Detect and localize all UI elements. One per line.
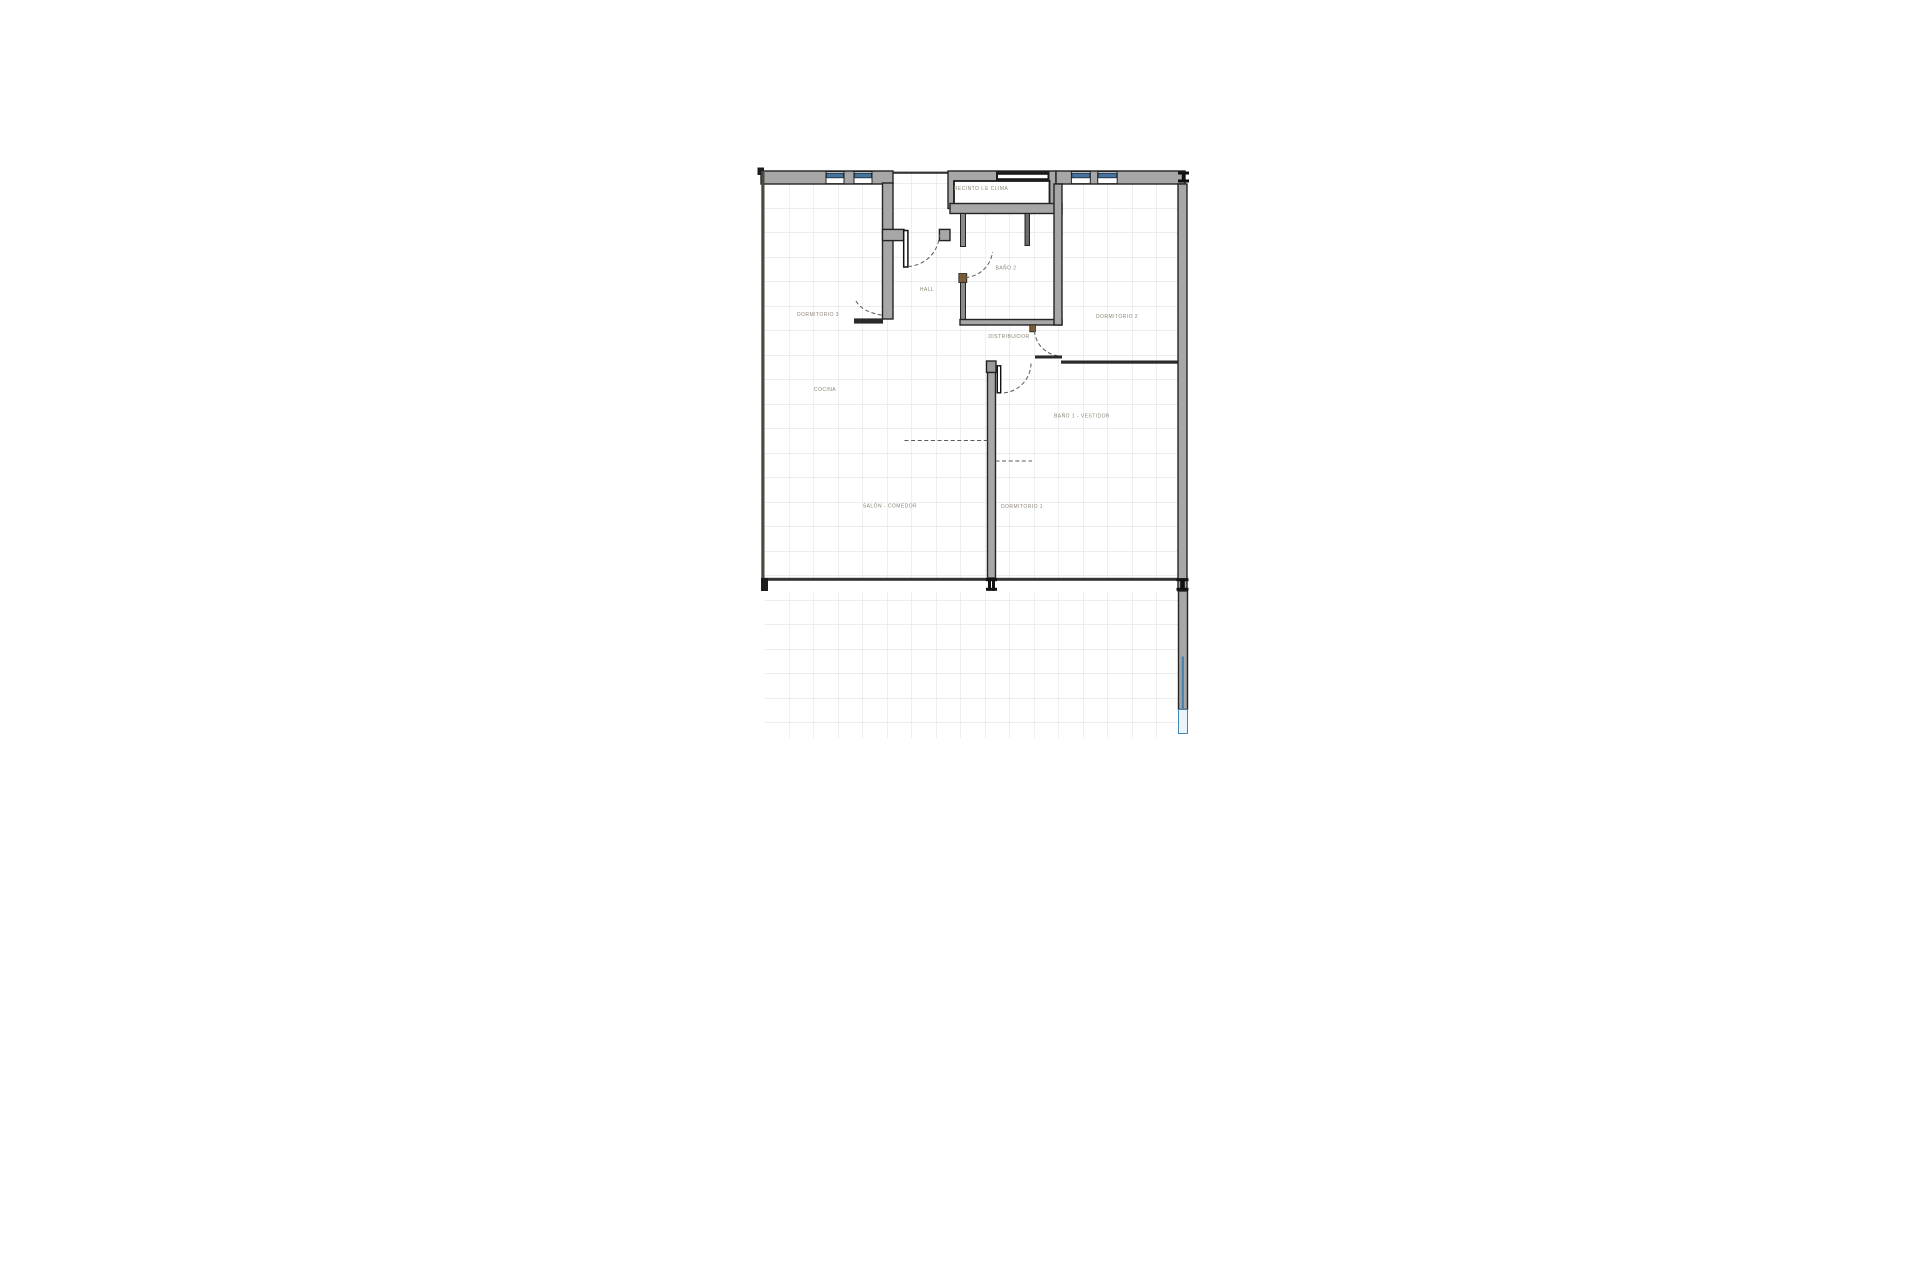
svg-text:BAÑO 2: BAÑO 2 xyxy=(995,265,1016,272)
svg-text:DORMITORIO 2: DORMITORIO 2 xyxy=(1096,314,1138,320)
svg-text:HALL: HALL xyxy=(920,287,934,293)
svg-text:COCINA: COCINA xyxy=(814,387,836,393)
svg-text:BAÑO 1 - VESTIDOR: BAÑO 1 - VESTIDOR xyxy=(1054,413,1110,420)
svg-text:DORMITORIO 3: DORMITORIO 3 xyxy=(797,312,839,318)
svg-text:RECINTO I.E CLIMA: RECINTO I.E CLIMA xyxy=(954,186,1008,192)
svg-text:DISTRIBUIDOR: DISTRIBUIDOR xyxy=(988,334,1029,340)
svg-text:DORMITORIO 1: DORMITORIO 1 xyxy=(1001,504,1043,510)
svg-text:SALÓN - COMEDOR: SALÓN - COMEDOR xyxy=(863,503,917,510)
